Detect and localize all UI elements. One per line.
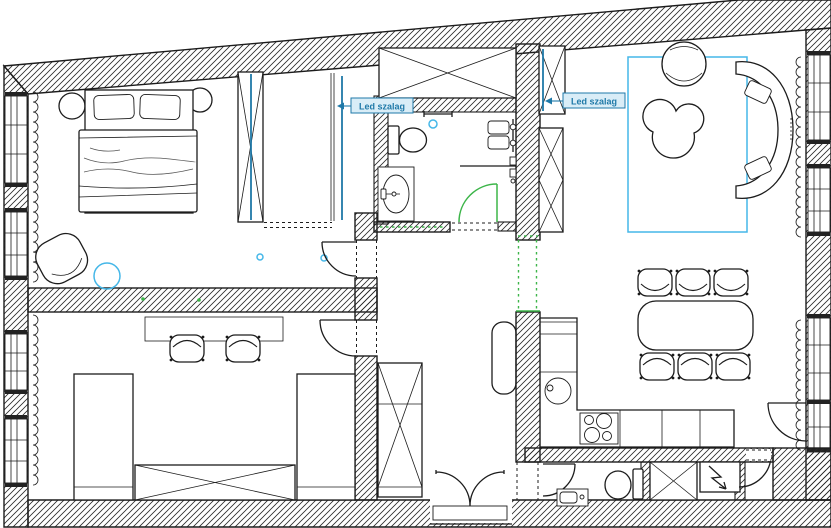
dining-chair [678, 353, 713, 380]
single-bed-right [297, 374, 355, 500]
toilet [388, 126, 427, 154]
wall-corner-pier [773, 448, 831, 500]
balcony-door-panel [808, 402, 830, 452]
window [808, 168, 830, 232]
washbasin [378, 167, 414, 221]
pillow [140, 94, 181, 119]
media-cabinet-lower [539, 128, 563, 232]
single-bed-left [74, 374, 133, 500]
wall-bottom [28, 500, 831, 527]
dining-table [638, 301, 753, 350]
floor-plan-sheet: Led szalag Led szalag [0, 0, 831, 528]
dining-set [638, 269, 753, 380]
wall-hall-lower [355, 356, 377, 500]
dining-chair [638, 269, 673, 296]
wall-kitchen-divider [516, 312, 540, 462]
wall-bathroom-bottom-stub [498, 222, 516, 231]
blanket [79, 130, 197, 212]
floor-plan-canvas: Led szalag Led szalag [0, 0, 831, 528]
green-dot [141, 297, 145, 301]
window [808, 318, 830, 400]
lounge-armchair [662, 42, 706, 86]
window [5, 96, 27, 183]
desk-chair [170, 335, 205, 362]
hall-wardrobe [378, 363, 422, 497]
wall-bathroom-right [516, 44, 540, 240]
window [808, 55, 830, 140]
wc-toilet [605, 469, 643, 499]
green-dot [197, 298, 201, 302]
window [5, 212, 27, 276]
led-label-text: Led szalag [571, 97, 617, 107]
hand-basin [557, 489, 588, 506]
desk-chair [226, 335, 261, 362]
dining-chair [714, 269, 749, 296]
double-bed [79, 90, 197, 213]
dining-chair [676, 269, 711, 296]
kitchen-sink [545, 378, 571, 404]
pillow [94, 94, 135, 119]
storage-chest [135, 465, 295, 500]
led-label-text: Led szalag [359, 102, 405, 112]
window [5, 334, 27, 390]
dining-chair [716, 353, 751, 380]
wall-kitchen-wc [525, 448, 773, 462]
window [5, 419, 27, 483]
threshold [433, 506, 507, 520]
door-opening [746, 449, 771, 461]
electrical-panel [700, 462, 740, 492]
shaft-box [650, 462, 697, 500]
wall-hall-mid [355, 278, 377, 320]
dining-chair [640, 353, 675, 380]
wall-bedroom-kidsroom [28, 288, 377, 312]
cooktop [580, 413, 618, 444]
